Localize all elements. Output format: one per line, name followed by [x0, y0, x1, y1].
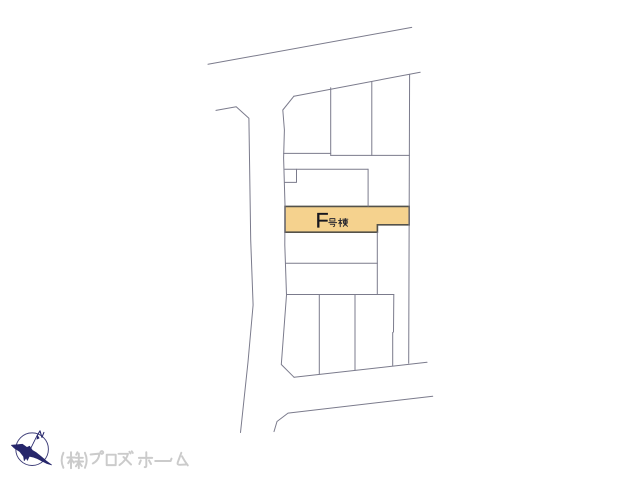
- svg-text:F: F: [316, 208, 329, 232]
